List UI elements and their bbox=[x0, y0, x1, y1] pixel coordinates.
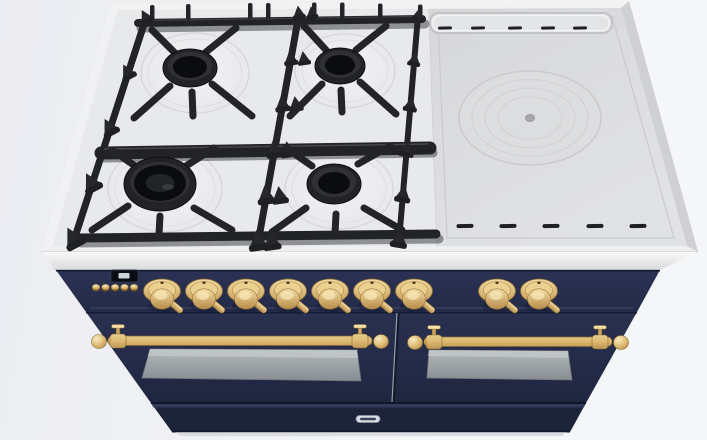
top-vent-slot-5 bbox=[573, 26, 587, 29]
top-vent-slot-4 bbox=[541, 26, 555, 29]
steel-trim-band bbox=[42, 252, 697, 270]
range-render bbox=[0, 0, 707, 440]
bottom-vent-slot-4 bbox=[586, 224, 603, 228]
front-left-burner bbox=[124, 157, 196, 211]
front-right-burner bbox=[307, 164, 361, 204]
top-vent-slot-1 bbox=[438, 26, 452, 29]
panel-button-3 bbox=[111, 284, 119, 291]
left-oven-door-glass bbox=[142, 349, 361, 381]
rear-right-burner bbox=[315, 48, 365, 84]
product-viewer-canvas[interactable]: Top-front 3D render of a 48-inch dual-fu… bbox=[0, 0, 707, 440]
panel-button-5 bbox=[130, 284, 138, 291]
top-vent-slot-2 bbox=[471, 26, 485, 29]
top-vent-slot-3 bbox=[508, 26, 522, 29]
french-top-plate bbox=[459, 71, 601, 165]
clock-display bbox=[111, 270, 138, 282]
range-front bbox=[56, 270, 660, 436]
panel-button-2 bbox=[101, 284, 109, 291]
clock-screen bbox=[119, 273, 130, 279]
bottom-vent-slot-2 bbox=[499, 224, 516, 228]
french-top-griddle bbox=[429, 8, 687, 246]
bottom-vent-slot-1 bbox=[456, 224, 473, 228]
kickplate bbox=[151, 403, 586, 436]
bottom-vent-slot-3 bbox=[542, 224, 559, 228]
griddle-rail bbox=[430, 13, 612, 33]
bottom-vent-slot-5 bbox=[629, 224, 646, 228]
panel-button-1 bbox=[92, 284, 100, 291]
panel-button-4 bbox=[120, 284, 128, 291]
brand-badge bbox=[356, 416, 380, 423]
french-top-center-cap bbox=[526, 115, 535, 122]
right-oven-door-glass bbox=[427, 350, 572, 380]
rear-left-burner bbox=[163, 49, 217, 87]
range-top bbox=[41, 1, 698, 252]
